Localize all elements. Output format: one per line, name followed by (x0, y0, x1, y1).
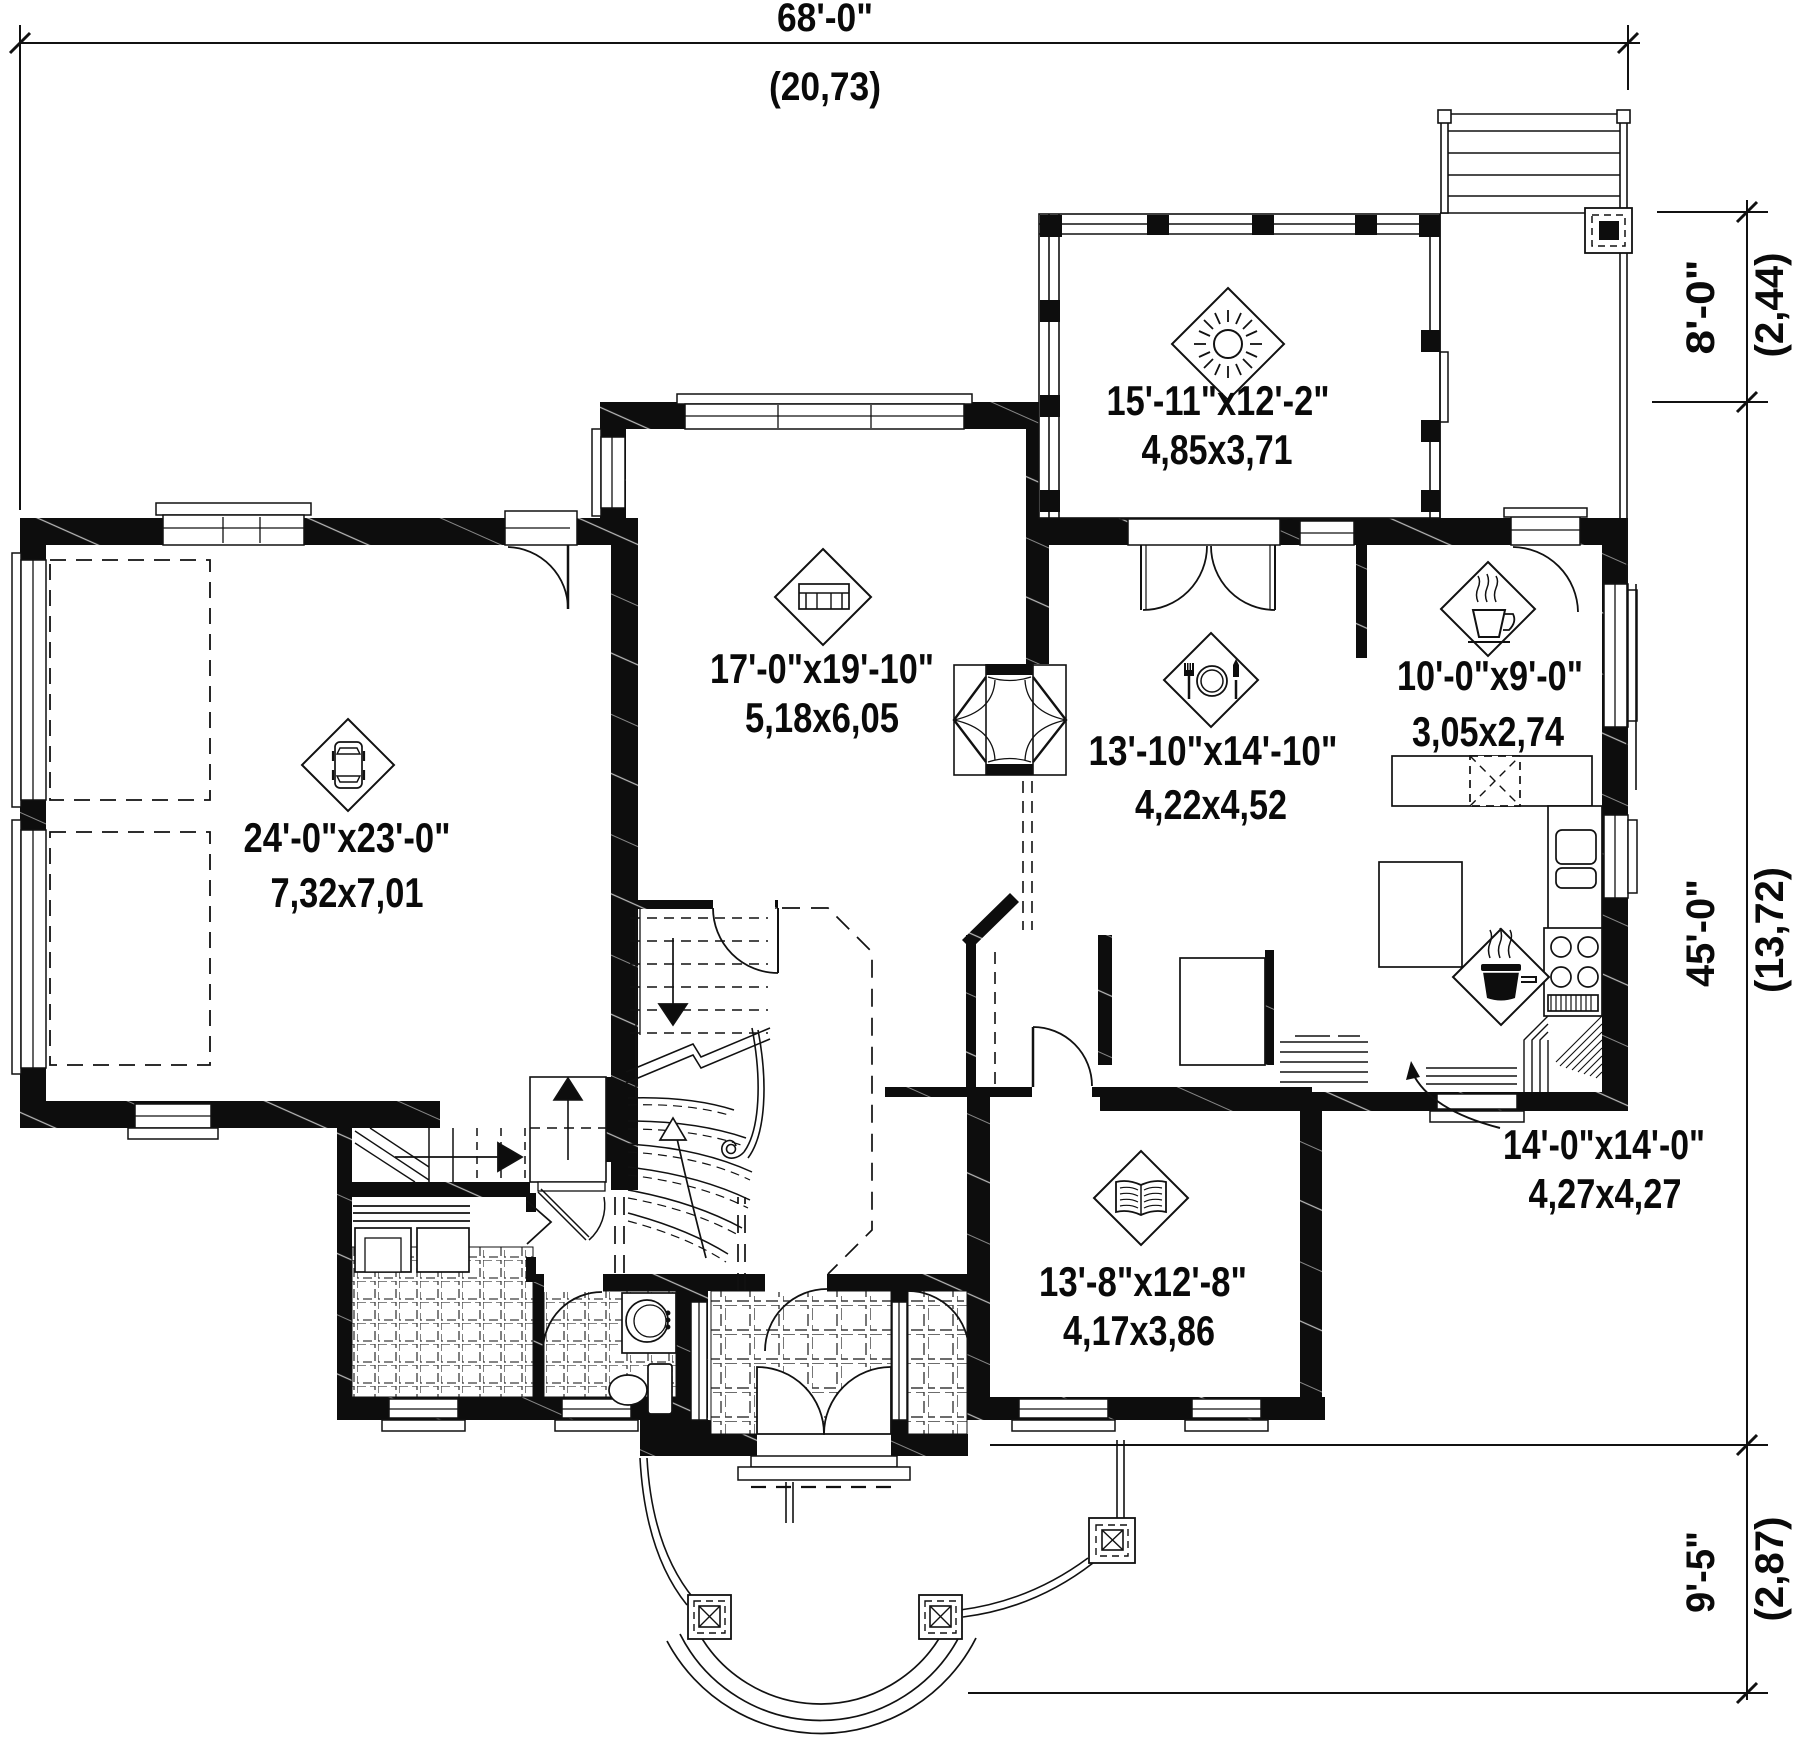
svg-text:13'-8"x12'-8": 13'-8"x12'-8" (1039, 1258, 1247, 1305)
svg-text:5,18x6,05: 5,18x6,05 (745, 694, 899, 741)
svg-text:9'-5": 9'-5" (1679, 1531, 1723, 1613)
svg-text:4,22x4,52: 4,22x4,52 (1135, 781, 1287, 828)
svg-text:14'-0"x14'-0": 14'-0"x14'-0" (1503, 1121, 1705, 1168)
svg-text:68'-0": 68'-0" (777, 0, 873, 40)
svg-text:(2,87): (2,87) (1748, 1517, 1792, 1622)
svg-text:3,05x2,74: 3,05x2,74 (1412, 708, 1565, 755)
svg-text:4,17x3,86: 4,17x3,86 (1063, 1307, 1215, 1354)
svg-text:8'-0": 8'-0" (1679, 260, 1723, 355)
svg-text:10'-0"x9'-0": 10'-0"x9'-0" (1397, 652, 1583, 699)
svg-text:45'-0": 45'-0" (1679, 879, 1723, 987)
svg-text:(20,73): (20,73) (769, 65, 881, 109)
svg-text:4,85x3,71: 4,85x3,71 (1142, 426, 1293, 473)
svg-text:7,32x7,01: 7,32x7,01 (271, 869, 424, 916)
svg-text:(2,44): (2,44) (1748, 253, 1792, 358)
svg-text:(13,72): (13,72) (1748, 867, 1792, 993)
svg-text:15'-11"x12'-2": 15'-11"x12'-2" (1107, 377, 1330, 424)
svg-text:24'-0"x23'-0": 24'-0"x23'-0" (244, 814, 451, 861)
svg-text:13'-10"x14'-10": 13'-10"x14'-10" (1089, 727, 1338, 774)
svg-text:4,27x4,27: 4,27x4,27 (1529, 1170, 1682, 1217)
svg-text:17'-0"x19'-10": 17'-0"x19'-10" (710, 645, 934, 692)
